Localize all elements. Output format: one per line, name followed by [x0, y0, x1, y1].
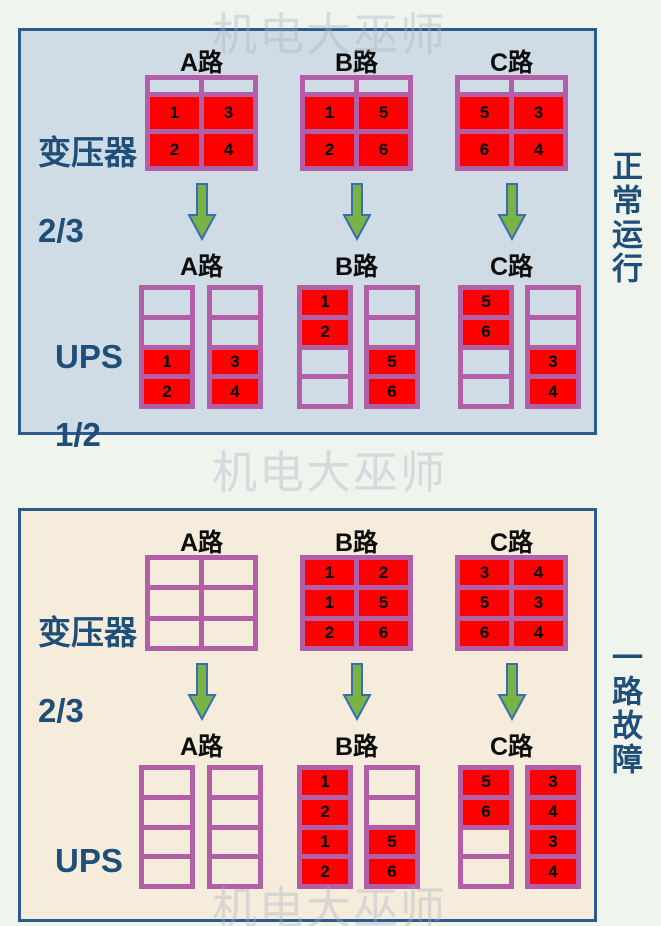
load-cell-active: 1	[150, 97, 199, 129]
down-arrow-icon	[342, 183, 372, 241]
load-cell-empty	[369, 800, 415, 825]
load-cell-active: 4	[514, 621, 563, 646]
load-cell-active: 2	[302, 320, 348, 345]
ups-tower-a2	[207, 765, 263, 889]
load-cell-active: 5	[463, 290, 509, 315]
ups-tower-c1: 56	[458, 765, 514, 889]
transformer-grid-c: 5364	[455, 75, 568, 171]
load-cell-empty	[212, 320, 258, 345]
load-cell-empty	[212, 290, 258, 315]
load-cell-active: 4	[514, 134, 563, 166]
load-cell-empty	[144, 290, 190, 315]
ups-column-header-b: B路	[300, 247, 413, 283]
transformer-column-header-a: A路	[145, 43, 258, 79]
load-cell-empty	[369, 770, 415, 795]
load-cell-active: 2	[359, 560, 408, 585]
down-arrow-icon	[187, 183, 217, 241]
load-cell-active: 3	[514, 97, 563, 129]
ups-column-header-a: A路	[145, 727, 258, 763]
load-cell-active: 6	[359, 621, 408, 646]
load-cell-empty	[212, 770, 258, 795]
load-cell-empty	[144, 320, 190, 345]
ups-tower-a2: 34	[207, 285, 263, 409]
ups-section-label: UPS 1/2	[55, 803, 123, 926]
load-cell-empty	[530, 320, 576, 345]
ups-column-header-c: C路	[455, 727, 568, 763]
load-cell-empty	[463, 830, 509, 855]
transformer-ratio: 2/3	[38, 212, 137, 251]
load-cell-empty	[460, 80, 509, 92]
load-cell-active: 3	[204, 97, 253, 129]
load-cell-active: 4	[514, 560, 563, 585]
load-cell-empty	[514, 80, 563, 92]
load-cell-active: 3	[514, 590, 563, 615]
watermark-middle: 机电大巫师	[212, 436, 462, 501]
transformer-grid-c: 345364	[455, 555, 568, 651]
ups-tower-b2: 56	[364, 285, 420, 409]
load-cell-active: 5	[359, 97, 408, 129]
transformer-column-header-a: A路	[145, 523, 258, 559]
load-cell-empty	[150, 621, 199, 646]
load-cell-empty	[204, 590, 253, 615]
transformer-grid-a	[145, 555, 258, 651]
load-cell-active: 6	[460, 621, 509, 646]
transformer-ratio: 2/3	[38, 692, 137, 731]
load-cell-empty	[530, 290, 576, 315]
load-cell-empty	[204, 621, 253, 646]
load-cell-active: 2	[150, 134, 199, 166]
load-cell-active: 1	[305, 97, 354, 129]
load-cell-active: 2	[302, 800, 348, 825]
transformer-column-header-c: C路	[455, 523, 568, 559]
load-cell-active: 1	[302, 770, 348, 795]
load-cell-active: 5	[359, 590, 408, 615]
load-cell-active: 4	[212, 379, 258, 404]
ups-tower-c1: 56	[458, 285, 514, 409]
ups-column-header-b: B路	[300, 727, 413, 763]
load-cell-active: 6	[463, 800, 509, 825]
ups-tower-b1: 1212	[297, 765, 353, 889]
down-arrow-icon	[497, 183, 527, 241]
ups-label: UPS	[55, 842, 123, 881]
load-cell-empty	[204, 560, 253, 585]
ups-ratio: 1/2	[55, 416, 123, 455]
load-cell-active: 1	[144, 350, 190, 375]
ups-label: UPS	[55, 338, 123, 377]
load-cell-empty	[463, 350, 509, 375]
load-cell-empty	[359, 80, 408, 92]
load-cell-active: 6	[463, 320, 509, 345]
load-cell-active: 6	[460, 134, 509, 166]
transformer-grid-a: 1324	[145, 75, 258, 171]
load-cell-empty	[212, 800, 258, 825]
load-cell-active: 5	[369, 830, 415, 855]
transformer-label: 变压器	[38, 614, 137, 653]
transformer-column-header-b: B路	[300, 523, 413, 559]
panel-normal-operation: 变压器 2/3 A路 B路 C路 1324 1526 5364 A路 B路 C路…	[18, 28, 597, 435]
load-cell-active: 4	[204, 134, 253, 166]
load-cell-active: 3	[530, 770, 576, 795]
load-cell-empty	[302, 350, 348, 375]
ups-tower-a1: 12	[139, 285, 195, 409]
load-cell-empty	[144, 770, 190, 795]
load-cell-active: 6	[369, 379, 415, 404]
transformer-column-header-b: B路	[300, 43, 413, 79]
infographic-page: 机电大巫师 机电大巫师 机电大巫师 变压器 2/3 A路 B路 C路 1324 …	[0, 0, 661, 926]
transformer-grid-b: 121526	[300, 555, 413, 651]
load-cell-active: 3	[530, 350, 576, 375]
load-cell-active: 6	[369, 859, 415, 884]
load-cell-empty	[302, 379, 348, 404]
load-cell-active: 3	[460, 560, 509, 585]
load-cell-empty	[463, 859, 509, 884]
load-cell-active: 5	[460, 590, 509, 615]
load-cell-active: 5	[369, 350, 415, 375]
side-label-normal-operation: 正常运行	[602, 150, 647, 286]
load-cell-empty	[463, 379, 509, 404]
ups-ratio: 1/2	[55, 920, 123, 926]
ups-tower-a1	[139, 765, 195, 889]
load-cell-active: 1	[302, 290, 348, 315]
load-cell-active: 3	[530, 830, 576, 855]
transformer-section-label: 变压器 2/3	[38, 575, 137, 770]
load-cell-active: 1	[305, 560, 354, 585]
ups-tower-c2: 34	[525, 285, 581, 409]
ups-tower-b2: 56	[364, 765, 420, 889]
side-label-one-path-fault: 一路故障	[602, 641, 647, 777]
transformer-grid-b: 1526	[300, 75, 413, 171]
load-cell-empty	[305, 80, 354, 92]
load-cell-active: 6	[359, 134, 408, 166]
transformer-label: 变压器	[38, 134, 137, 173]
load-cell-active: 2	[305, 134, 354, 166]
load-cell-empty	[150, 590, 199, 615]
ups-column-header-a: A路	[145, 247, 258, 283]
load-cell-active: 3	[212, 350, 258, 375]
load-cell-active: 1	[302, 830, 348, 855]
ups-tower-b1: 12	[297, 285, 353, 409]
load-cell-empty	[144, 830, 190, 855]
load-cell-empty	[369, 320, 415, 345]
down-arrow-icon	[342, 663, 372, 721]
load-cell-active: 5	[463, 770, 509, 795]
load-cell-active: 5	[460, 97, 509, 129]
load-cell-empty	[369, 290, 415, 315]
load-cell-empty	[212, 830, 258, 855]
panel-one-path-fault: 变压器 2/3 A路 B路 C路 121526 345364 A路 B路 C路 …	[18, 508, 597, 922]
load-cell-active: 2	[144, 379, 190, 404]
load-cell-active: 2	[302, 859, 348, 884]
down-arrow-icon	[187, 663, 217, 721]
ups-tower-c2: 3434	[525, 765, 581, 889]
load-cell-active: 4	[530, 859, 576, 884]
ups-section-label: UPS 1/2	[55, 299, 123, 494]
transformer-column-header-c: C路	[455, 43, 568, 79]
load-cell-empty	[212, 859, 258, 884]
load-cell-empty	[150, 560, 199, 585]
ups-column-header-c: C路	[455, 247, 568, 283]
load-cell-active: 1	[305, 590, 354, 615]
transformer-section-label: 变压器 2/3	[38, 95, 137, 290]
load-cell-active: 4	[530, 800, 576, 825]
load-cell-empty	[204, 80, 253, 92]
load-cell-empty	[144, 859, 190, 884]
down-arrow-icon	[497, 663, 527, 721]
load-cell-active: 2	[305, 621, 354, 646]
load-cell-empty	[144, 800, 190, 825]
load-cell-empty	[150, 80, 199, 92]
load-cell-active: 4	[530, 379, 576, 404]
